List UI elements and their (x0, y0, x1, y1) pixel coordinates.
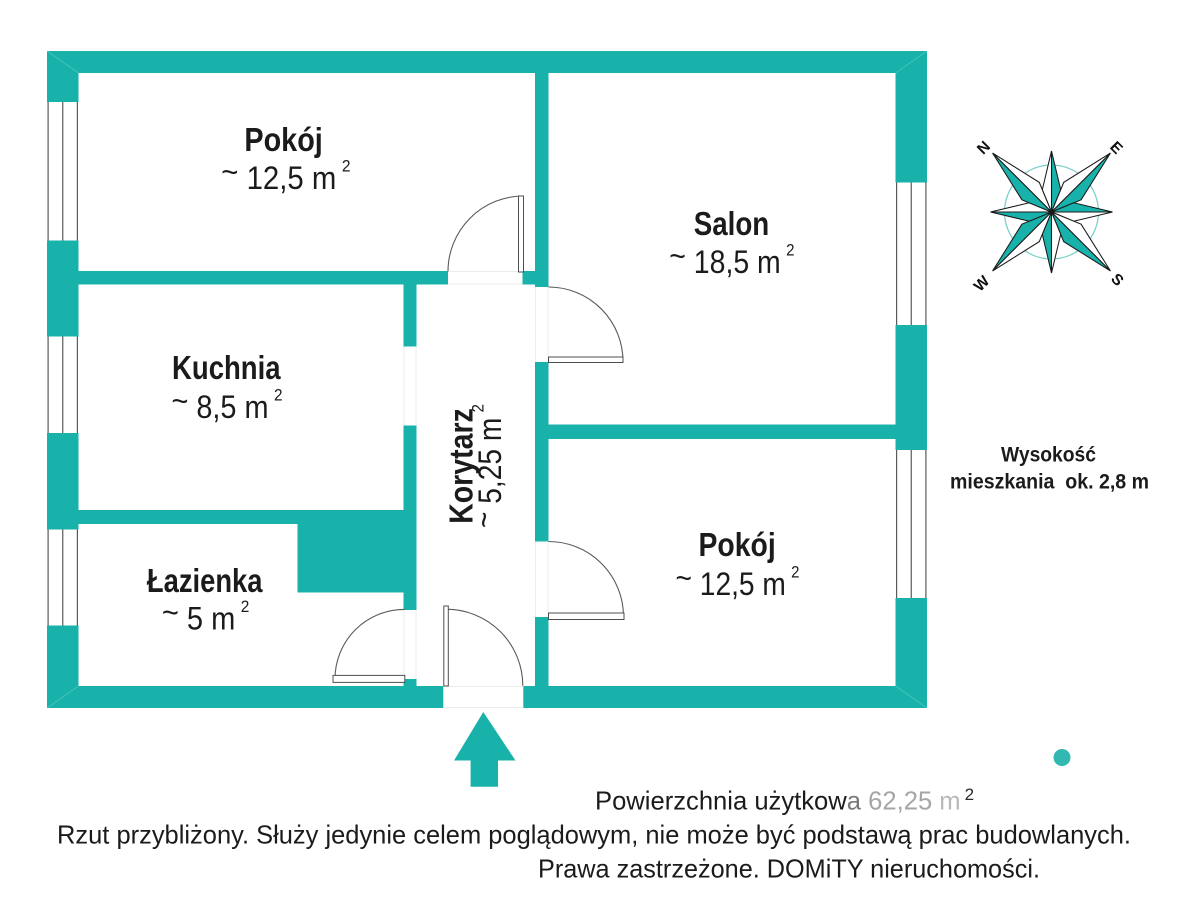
svg-text:Kuchnia: Kuchnia (172, 349, 281, 386)
svg-text:Salon: Salon (694, 205, 770, 242)
svg-text:N: N (974, 138, 994, 158)
svg-text:~ 5 m2: ~ 5 m2 (162, 595, 250, 637)
svg-text:Powierzchnia użytkowa 62,25 m2: Powierzchnia użytkowa 62,25 m2 (595, 785, 974, 816)
svg-text:~ 8,5 m2: ~ 8,5 m2 (172, 383, 283, 425)
svg-text:Wysokość: Wysokość (1001, 444, 1096, 467)
svg-text:Prawa zastrzeżone. DOMiTY nier: Prawa zastrzeżone. DOMiTY nieruchomości. (538, 854, 1040, 884)
svg-text:~ 5,25 m2: ~ 5,25 m2 (466, 404, 508, 528)
svg-text:Rzut przybliżony. Służy jedyni: Rzut przybliżony. Służy jedynie celem po… (57, 820, 1131, 850)
svg-text:Pokój: Pokój (699, 526, 776, 563)
svg-text:S: S (1107, 270, 1126, 289)
svg-text:~ 18,5 m2: ~ 18,5 m2 (669, 238, 794, 280)
svg-text:W: W (971, 273, 994, 296)
svg-text:~ 12,5 m2: ~ 12,5 m2 (221, 154, 350, 196)
svg-text:Pokój: Pokój (244, 121, 322, 158)
svg-text:mieszkania ok. 2,8 m: mieszkania ok. 2,8 m (950, 471, 1149, 494)
svg-text:~ 12,5 m2: ~ 12,5 m2 (676, 560, 800, 602)
